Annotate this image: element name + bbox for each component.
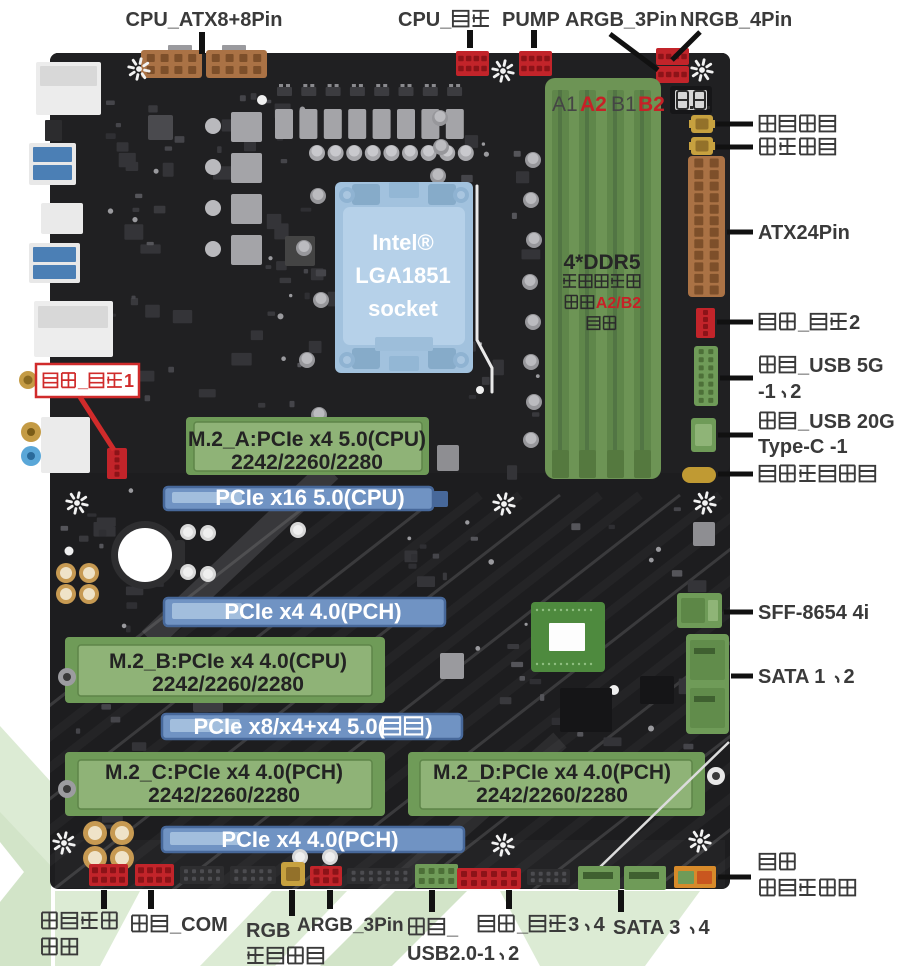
svg-text:2242/2260/2280: 2242/2260/2280	[231, 451, 383, 474]
svg-text:ATX24Pin: ATX24Pin	[758, 222, 850, 244]
svg-text:ARGB_3Pin: ARGB_3Pin	[565, 9, 677, 31]
svg-text:_USB 5G: _USB 5G	[797, 355, 884, 377]
svg-text:B1: B1	[611, 93, 637, 116]
svg-text:CPU_: CPU_	[398, 9, 452, 31]
svg-text:PUMP: PUMP	[502, 9, 560, 31]
svg-text:M.2_D:PCIe x4 4.0(PCH): M.2_D:PCIe x4 4.0(PCH)	[433, 761, 671, 784]
svg-text:2242/2260/2280: 2242/2260/2280	[152, 673, 304, 696]
svg-text:ARGB_3Pin: ARGB_3Pin	[297, 915, 404, 936]
svg-text:CPU_ATX8+8Pin: CPU_ATX8+8Pin	[126, 9, 283, 31]
svg-text:-1: -1	[758, 381, 776, 403]
svg-text:_: _	[516, 914, 529, 936]
svg-text:PCIe x4 4.0(PCH): PCIe x4 4.0(PCH)	[221, 827, 398, 852]
svg-text:PCIe x8/x4+x4 5.0(: PCIe x8/x4+x4 5.0(	[194, 714, 386, 739]
svg-text:4*DDR5: 4*DDR5	[563, 251, 640, 274]
svg-text:M.2_C:PCIe x4 4.0(PCH): M.2_C:PCIe x4 4.0(PCH)	[105, 761, 343, 784]
svg-text:A2/B2: A2/B2	[596, 295, 641, 312]
svg-text:SATA 1: SATA 1	[758, 666, 825, 688]
svg-text:PCIe x4 4.0(PCH): PCIe x4 4.0(PCH)	[224, 599, 401, 624]
svg-text:B2: B2	[638, 93, 665, 116]
svg-text:Intel®: Intel®	[372, 230, 433, 255]
svg-text:2: 2	[844, 666, 855, 688]
svg-text:Type-C -1: Type-C -1	[758, 436, 848, 458]
svg-text:A2: A2	[580, 93, 607, 116]
svg-text:3: 3	[568, 914, 579, 936]
svg-text:_: _	[77, 371, 89, 391]
svg-text:USB2.0-1: USB2.0-1	[407, 943, 495, 965]
svg-text:_COM: _COM	[169, 914, 228, 936]
svg-text:LGA1851: LGA1851	[355, 263, 450, 288]
svg-text:M.2_B:PCIe x4 4.0(CPU): M.2_B:PCIe x4 4.0(CPU)	[109, 650, 347, 673]
svg-text:SATA 3: SATA 3	[613, 917, 680, 939]
svg-text:1: 1	[124, 371, 134, 391]
svg-text:A1: A1	[552, 93, 578, 116]
svg-text:_: _	[797, 312, 810, 334]
svg-text:2: 2	[508, 943, 519, 965]
svg-text:_: _	[446, 917, 459, 939]
svg-text:4: 4	[699, 917, 711, 939]
svg-text:2: 2	[790, 381, 801, 403]
svg-text:RGB: RGB	[246, 920, 290, 942]
svg-text:socket: socket	[368, 296, 438, 321]
svg-text:2242/2260/2280: 2242/2260/2280	[476, 784, 628, 807]
svg-text:M.2_A:PCIe x4 5.0(CPU): M.2_A:PCIe x4 5.0(CPU)	[188, 428, 426, 451]
svg-text:4: 4	[594, 914, 606, 936]
svg-text:SFF-8654 4i: SFF-8654 4i	[758, 602, 869, 624]
svg-text:2242/2260/2280: 2242/2260/2280	[148, 784, 300, 807]
svg-text:2: 2	[849, 312, 860, 334]
svg-text:_USB 20G: _USB 20G	[797, 411, 895, 433]
svg-text:PCIe x16 5.0(CPU): PCIe x16 5.0(CPU)	[215, 485, 405, 510]
svg-text:NRGB_4Pin: NRGB_4Pin	[680, 9, 792, 31]
svg-text:): )	[425, 714, 432, 739]
